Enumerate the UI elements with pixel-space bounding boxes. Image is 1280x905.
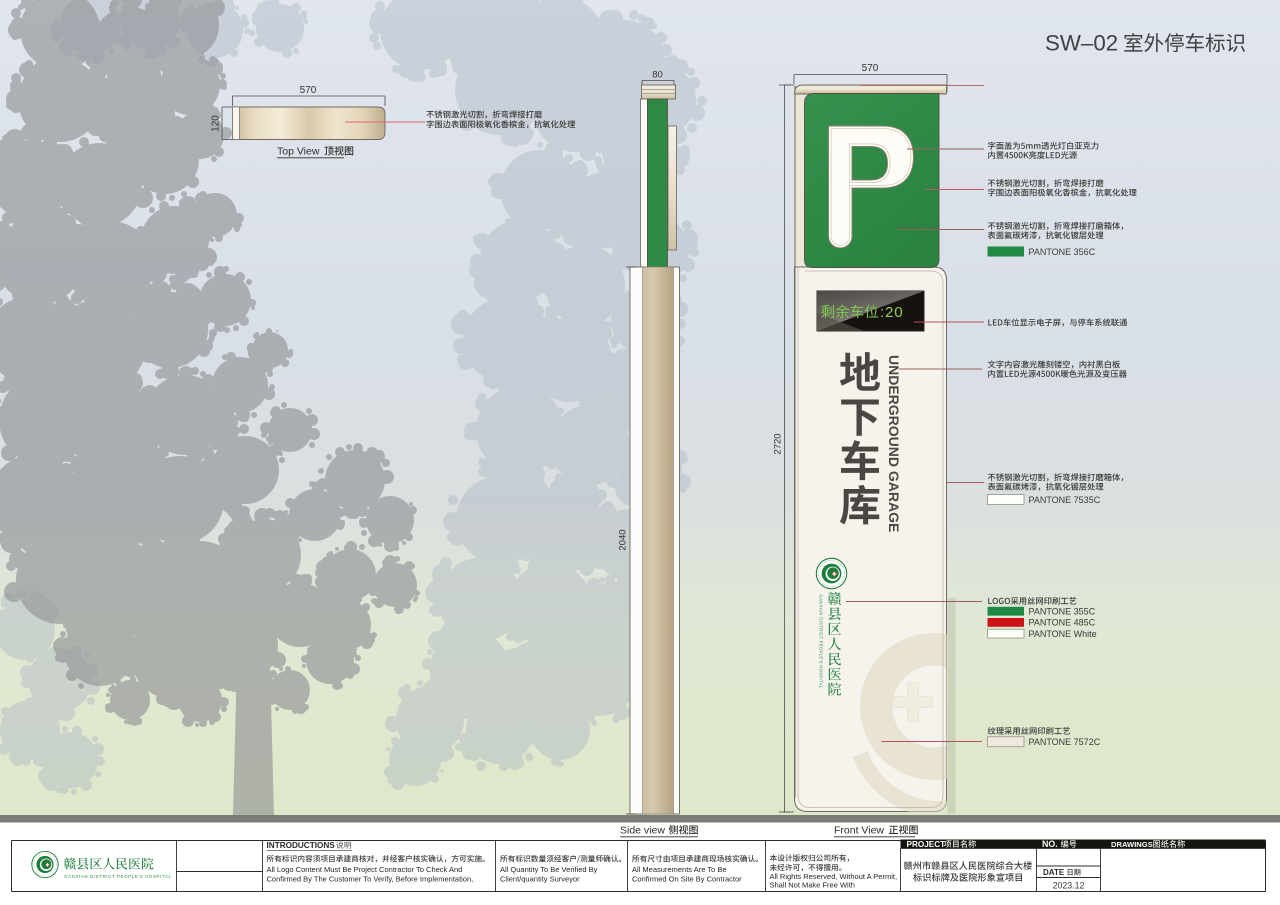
svg-text:Confirmed By The Customer To V: Confirmed By The Customer To Verify, Bef… bbox=[267, 874, 474, 883]
svg-text:Side view: Side view bbox=[620, 825, 665, 837]
svg-text:2720: 2720 bbox=[773, 433, 784, 454]
svg-text:All Logo Content Must Be Proje: All Logo Content Must Be Project Contrac… bbox=[267, 865, 463, 874]
svg-text:570: 570 bbox=[300, 85, 317, 96]
svg-text:DATE: DATE bbox=[1043, 868, 1065, 877]
svg-text:All Measurements Are To Be: All Measurements Are To Be bbox=[632, 865, 727, 874]
svg-text:PANTONE 7535C: PANTONE 7535C bbox=[1029, 495, 1101, 505]
svg-text:Confirmed On Site By Contracto: Confirmed On Site By Contractor bbox=[632, 874, 742, 883]
svg-text:GANXIAN DISTRICT PEOPLE'S HOSP: GANXIAN DISTRICT PEOPLE'S HOSPITAL bbox=[64, 874, 172, 879]
svg-text:PANTONE 355C: PANTONE 355C bbox=[1029, 607, 1096, 617]
svg-text:Shall Not Make Free With: Shall Not Make Free With bbox=[770, 881, 855, 890]
svg-text:PANTONE 7572C: PANTONE 7572C bbox=[1029, 737, 1101, 747]
svg-text:NO.: NO. bbox=[1042, 839, 1058, 849]
svg-text:UNDERGROUND GARAGE: UNDERGROUND GARAGE bbox=[886, 355, 902, 532]
svg-text:PROJECT: PROJECT bbox=[907, 840, 946, 849]
svg-text:Top View: Top View bbox=[277, 146, 320, 158]
svg-text:All Quantity To Be Verified By: All Quantity To Be Verified By bbox=[500, 865, 598, 874]
svg-text:INTRODUCTIONS: INTRODUCTIONS bbox=[267, 841, 336, 850]
svg-text:2040: 2040 bbox=[618, 529, 629, 550]
svg-text:SW–02: SW–02 bbox=[1045, 31, 1118, 56]
svg-text:PANTONE White: PANTONE White bbox=[1029, 629, 1097, 639]
svg-text:PANTONE 485C: PANTONE 485C bbox=[1029, 618, 1096, 628]
svg-text:PANTONE 356C: PANTONE 356C bbox=[1029, 247, 1096, 257]
svg-text:80: 80 bbox=[652, 70, 663, 81]
svg-text:Front View: Front View bbox=[834, 825, 884, 837]
svg-text:GANXIAN DISTRICT PEOPLE'S HOSP: GANXIAN DISTRICT PEOPLE'S HOSPITAL bbox=[819, 595, 824, 689]
svg-text::20: :20 bbox=[880, 304, 904, 321]
svg-text:570: 570 bbox=[862, 63, 879, 74]
svg-text:120: 120 bbox=[211, 115, 222, 132]
svg-text:DRAWINGS: DRAWINGS bbox=[1111, 840, 1153, 849]
svg-text:2023.12: 2023.12 bbox=[1053, 880, 1085, 890]
svg-text:Client/quantity Surveyor: Client/quantity Surveyor bbox=[500, 874, 580, 883]
